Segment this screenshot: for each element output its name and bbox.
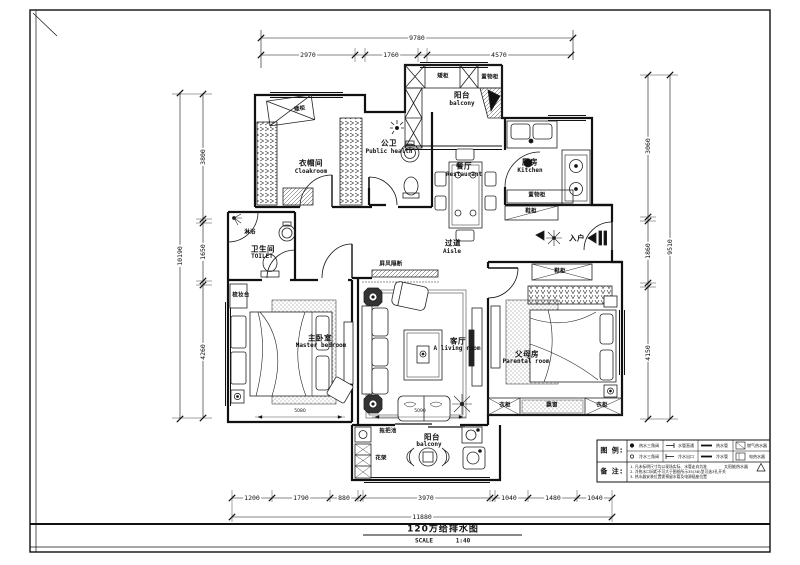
dim-right-total: 9510 — [667, 238, 674, 256]
electric-heater-icon — [736, 453, 745, 460]
room-label-public-bath-cn: 公卫 — [381, 139, 397, 147]
legend-cold-outlet: 冷水出口 — [678, 455, 694, 459]
room-label-master-en: Master bedroom — [296, 343, 347, 349]
room-label-aisle-cn: 过道 — [445, 239, 461, 247]
room-label-public-bath-en: Public health — [366, 149, 413, 155]
plant-icon — [546, 230, 562, 246]
scale-value: 1:40 — [456, 538, 470, 545]
room-label-balcony-bottom-en: balcony — [416, 442, 441, 448]
dim-bottom-seg-1: 1200 — [243, 495, 261, 502]
room-label-living-en: A living room — [434, 346, 481, 352]
label-bay-window: 飘窗 — [546, 403, 558, 409]
master-bedroom-furniture — [230, 284, 354, 417]
label-low-cabinet-balcony: 矮柜 — [437, 74, 449, 80]
room-label-cloakroom-cn: 衣帽间 — [299, 159, 323, 167]
room-label-balcony-top-cn: 阳台 — [454, 91, 470, 99]
cloakroom-furniture — [257, 95, 362, 205]
balcony-bottom-fixtures — [355, 427, 485, 478]
screen-partition — [362, 270, 440, 282]
legend-hot-pipe: 热水管 — [716, 444, 728, 448]
room-label-toilet-cn: 卫生间 — [251, 245, 275, 253]
legend-cold-valve: 冷水三角阀 — [639, 455, 659, 459]
label-mop-pool: 拖把池 — [379, 429, 396, 435]
cold-valve-icon — [630, 455, 633, 458]
legend-electric-heater: 电热水器 — [749, 455, 765, 459]
label-flower-rack: 花架 — [375, 456, 387, 462]
dim-top-seg-3: 4570 — [490, 52, 508, 59]
floor-plan-drawing — [0, 0, 800, 565]
dim-bottom-total: 11880 — [411, 514, 433, 521]
room-label-living-cn: 客厅 — [450, 337, 466, 345]
room-label-master-cn: 主卧室 — [308, 334, 332, 342]
room-label-kitchen-cn: 厨房 — [522, 158, 538, 166]
dim-left-seg-2: 1650 — [200, 243, 207, 261]
room-label-balcony-top-en: balcony — [449, 101, 474, 107]
plant-icon — [452, 394, 472, 414]
dim-bottom-seg-6: 1480 — [544, 495, 562, 502]
label-screen-partition: 屏风隔断 — [379, 262, 402, 268]
low-cabinet-box — [267, 95, 315, 126]
label-wardrobe-right: 衣柜 — [596, 403, 608, 409]
scale-label: SCALE — [415, 538, 433, 545]
dim-right-seg-3: 4150 — [645, 344, 652, 362]
room-label-balcony-bottom-cn: 阳台 — [424, 433, 440, 441]
label-dressing-table: 梳妆台 — [232, 293, 249, 299]
dim-bottom-seg-5: 1040 — [500, 495, 518, 502]
room-label-kitchen-en: Kitchen — [517, 168, 542, 174]
dim-bottom-seg-3: 880 — [337, 495, 351, 502]
dim-top-seg-1: 2970 — [299, 52, 317, 59]
label-storage-cabinet-kitchen: 置物柜 — [528, 193, 545, 199]
hot-valve-icon — [630, 444, 633, 447]
dim-left-seg-3: 4260 — [200, 343, 207, 361]
dim-top-seg-2: 1760 — [382, 52, 400, 59]
room-label-entry: 入户 — [569, 234, 585, 242]
room-label-parents-en: Parental room — [503, 359, 550, 365]
parents-room-furniture — [488, 286, 622, 415]
dim-left-total: 10190 — [177, 245, 184, 267]
room-label-parents-cn: 父母房 — [515, 350, 539, 358]
note-line-3: 3. 热水器安装位置需预留水管及电源插座位置 — [630, 475, 707, 479]
room-label-dining-en: Restaurant — [446, 172, 482, 178]
legend-solar-heater: 太阳能热水器 — [724, 465, 748, 469]
legend-header: 图 例: — [600, 448, 623, 455]
label-storage-cabinet-balcony: 置物柜 — [481, 75, 498, 81]
label-shoe-cabinet-kitchen: 鞋柜 — [525, 209, 537, 215]
dim-living-width: 5090 — [414, 410, 425, 415]
drawing-title: 120方给排水图 — [407, 526, 479, 535]
room-label-dining-cn: 餐厅 — [456, 162, 472, 170]
legend-cold-pipe: 冷水管 — [716, 455, 728, 459]
room-label-cloakroom-en: Cloakroom — [295, 169, 328, 175]
legend-gas-heater: 燃气热水器 — [747, 444, 767, 448]
room-label-toilet-en: TOILET — [251, 254, 273, 260]
label-shower: 淋浴 — [244, 230, 256, 236]
dim-top-total: 9780 — [408, 35, 426, 42]
dim-bottom-seg-7: 1040 — [586, 495, 604, 502]
label-shoe-cabinet-entry: 鞋柜 — [554, 269, 566, 275]
dim-left-seg-1: 3800 — [200, 148, 207, 166]
legend-hot-valve: 热水三角阀 — [639, 444, 659, 448]
legend-pipe-through: 水管直通 — [678, 444, 694, 448]
dim-bottom-seg-4: 3970 — [417, 495, 435, 502]
label-wardrobe-left: 衣柜 — [499, 403, 511, 409]
dim-right-seg-2: 1860 — [645, 242, 652, 260]
shower-head-icon — [233, 214, 243, 225]
dim-master-width: 5080 — [294, 410, 305, 415]
floor-plan-sheet: 衣帽间 Cloakroom 公卫 Public health 阳台 balcon… — [0, 0, 800, 565]
dim-right-seg-1: 3060 — [645, 137, 652, 155]
solar-heater-icon — [757, 464, 765, 472]
notes-header: 备 注: — [600, 469, 623, 476]
dim-bottom-seg-2: 1790 — [292, 495, 310, 502]
room-label-aisle-en: Aisle — [443, 249, 461, 255]
ceiling-lamp-icon — [390, 120, 404, 134]
